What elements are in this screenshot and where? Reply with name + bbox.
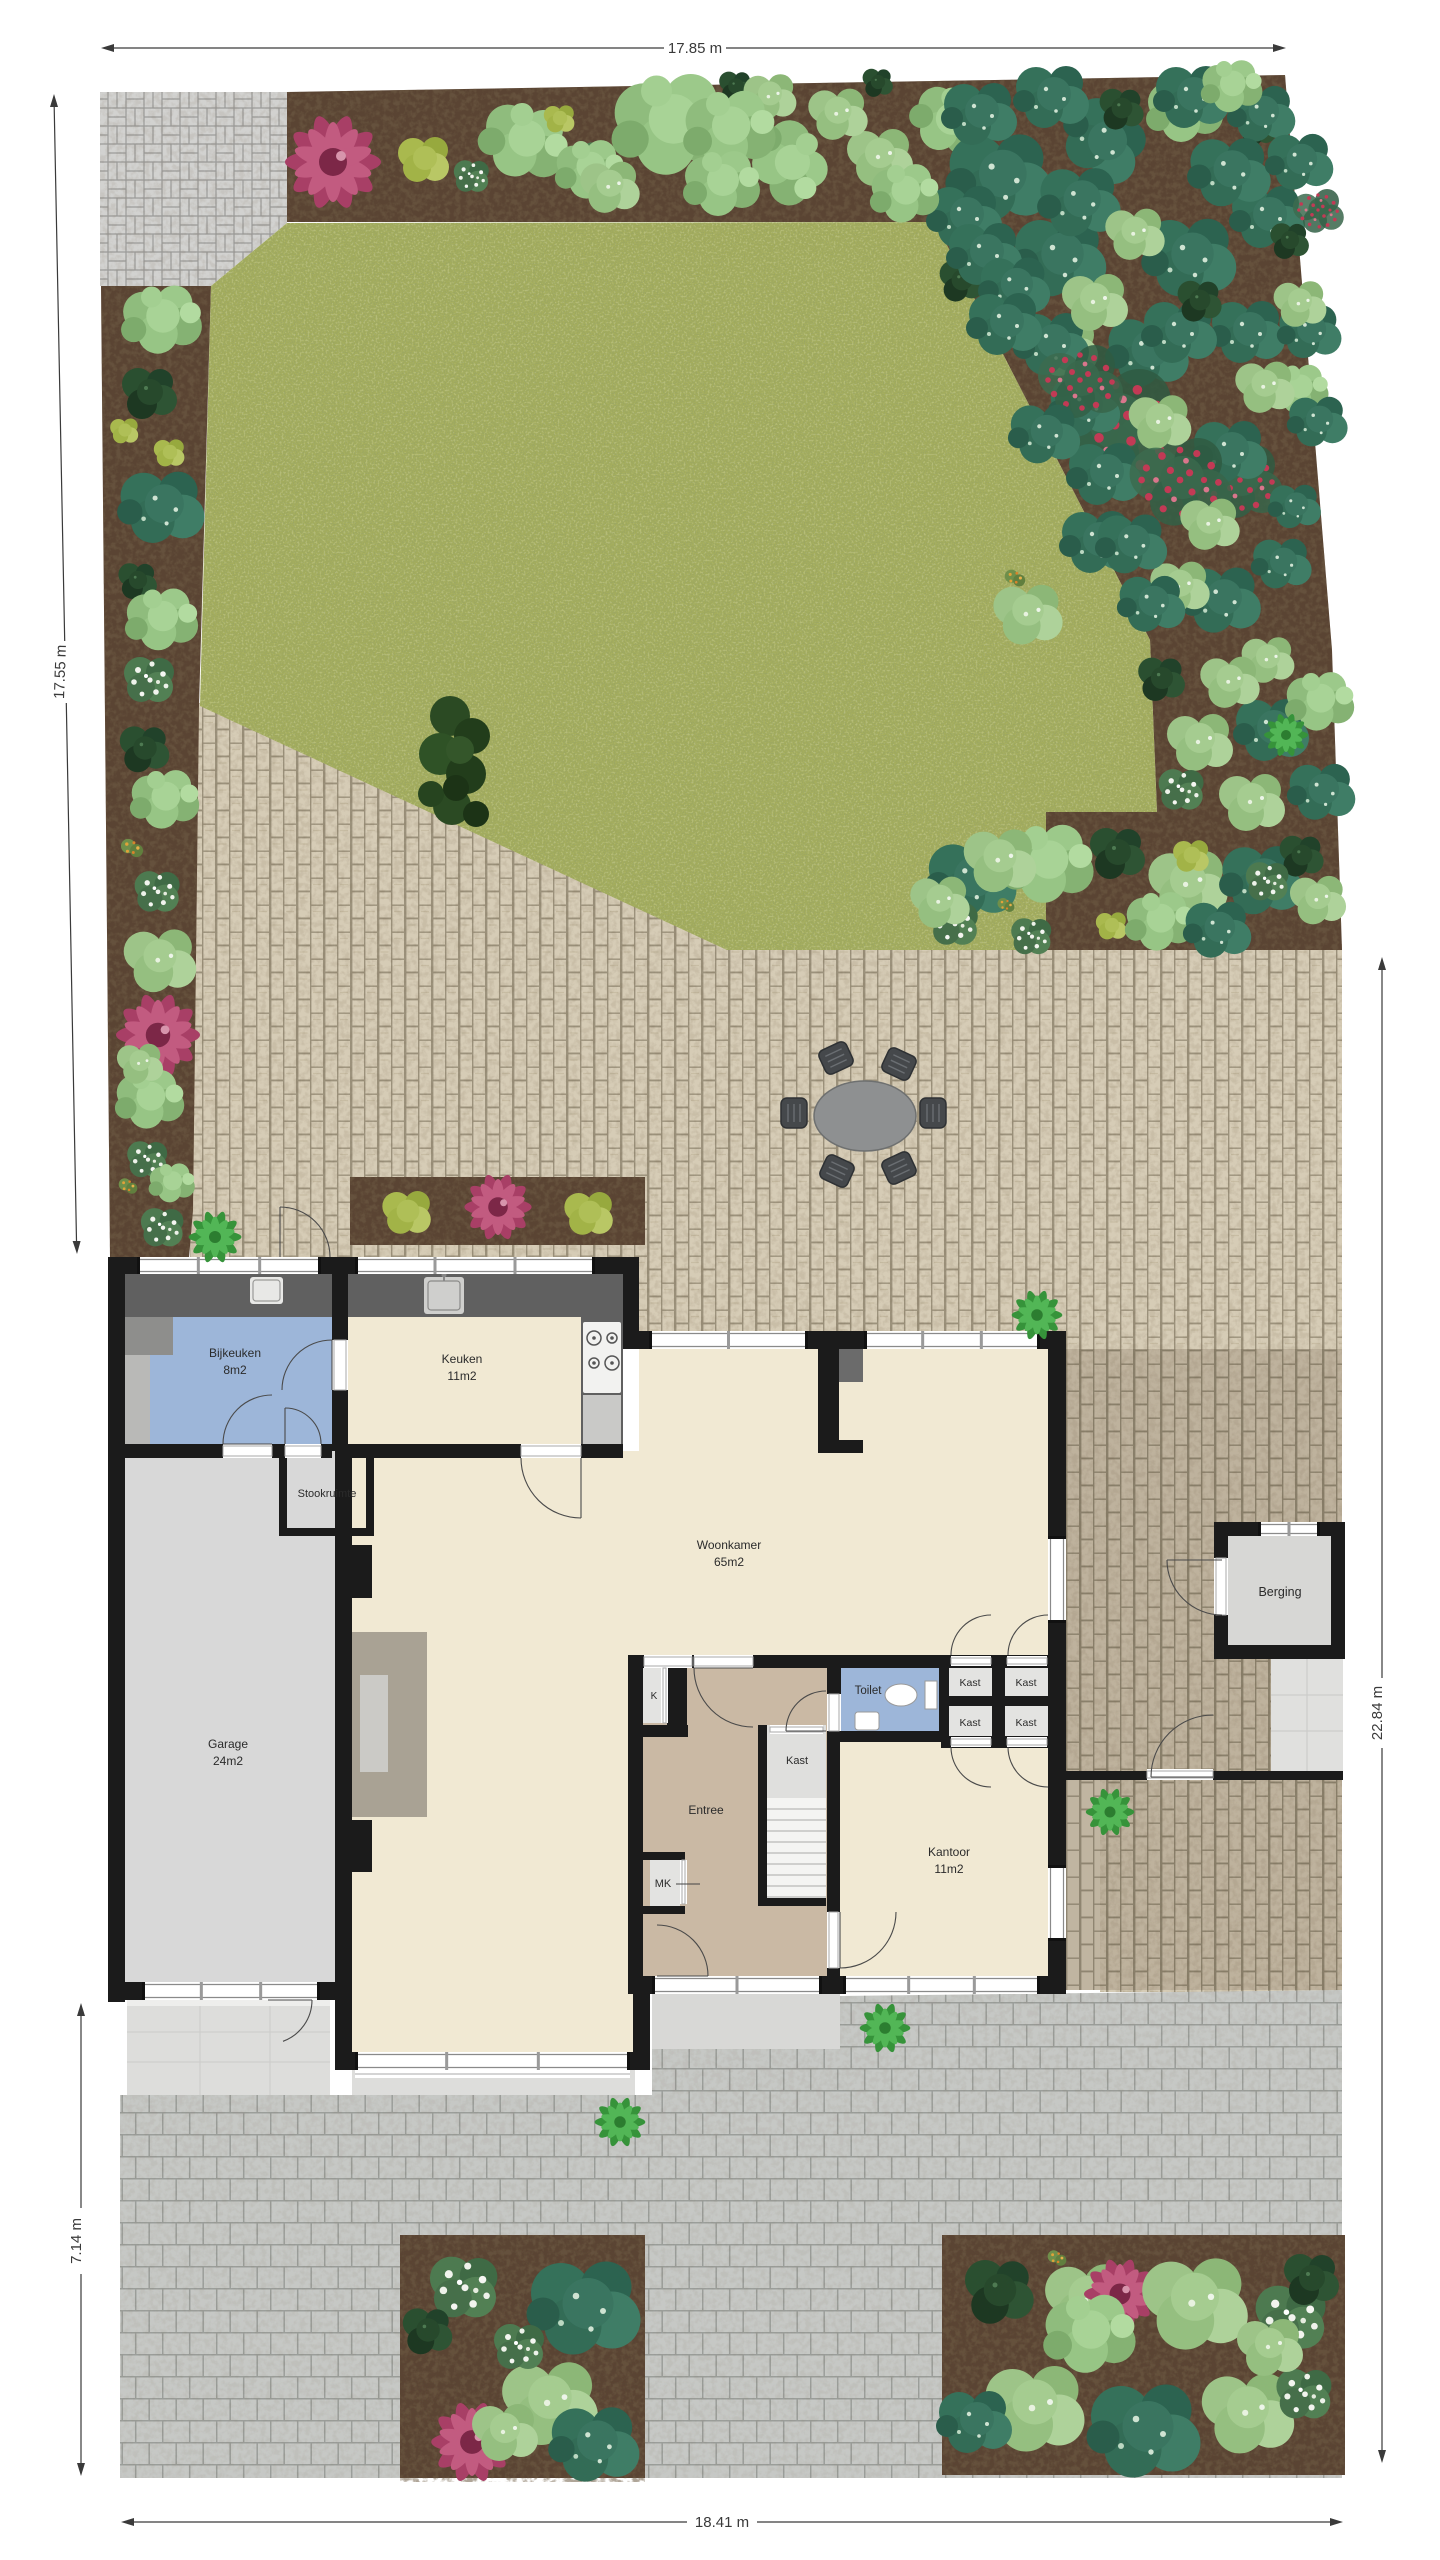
svg-text:Kantoor: Kantoor <box>928 1845 970 1859</box>
svg-text:18.41 m: 18.41 m <box>695 2514 749 2531</box>
svg-text:Keuken: Keuken <box>442 1352 483 1366</box>
svg-text:Toilet: Toilet <box>855 1685 883 1697</box>
svg-text:Kast: Kast <box>959 1717 980 1729</box>
svg-text:65m2: 65m2 <box>714 1555 744 1569</box>
svg-text:24m2: 24m2 <box>213 1754 243 1768</box>
svg-text:K: K <box>651 1691 658 1702</box>
svg-text:Garage: Garage <box>208 1737 248 1751</box>
svg-text:Kast: Kast <box>959 1677 980 1689</box>
svg-text:17.55 m: 17.55 m <box>51 644 70 699</box>
svg-text:Entree: Entree <box>688 1803 724 1817</box>
svg-text:17.85 m: 17.85 m <box>668 40 722 57</box>
svg-text:Kast: Kast <box>786 1755 808 1767</box>
svg-text:Kast: Kast <box>1015 1717 1036 1729</box>
svg-text:11m2: 11m2 <box>934 1862 963 1876</box>
svg-text:11m2: 11m2 <box>447 1369 476 1383</box>
svg-text:7.14 m: 7.14 m <box>68 2218 85 2264</box>
svg-text:8m2: 8m2 <box>223 1363 247 1377</box>
svg-text:Woonkamer: Woonkamer <box>697 1538 761 1552</box>
svg-text:22.84 m: 22.84 m <box>1369 1686 1386 1740</box>
svg-text:MK: MK <box>655 1878 672 1890</box>
svg-text:Stookruimte: Stookruimte <box>298 1488 357 1500</box>
svg-text:Bijkeuken: Bijkeuken <box>209 1346 261 1360</box>
svg-text:Kast: Kast <box>1015 1677 1036 1689</box>
svg-text:Berging: Berging <box>1258 1585 1301 1599</box>
